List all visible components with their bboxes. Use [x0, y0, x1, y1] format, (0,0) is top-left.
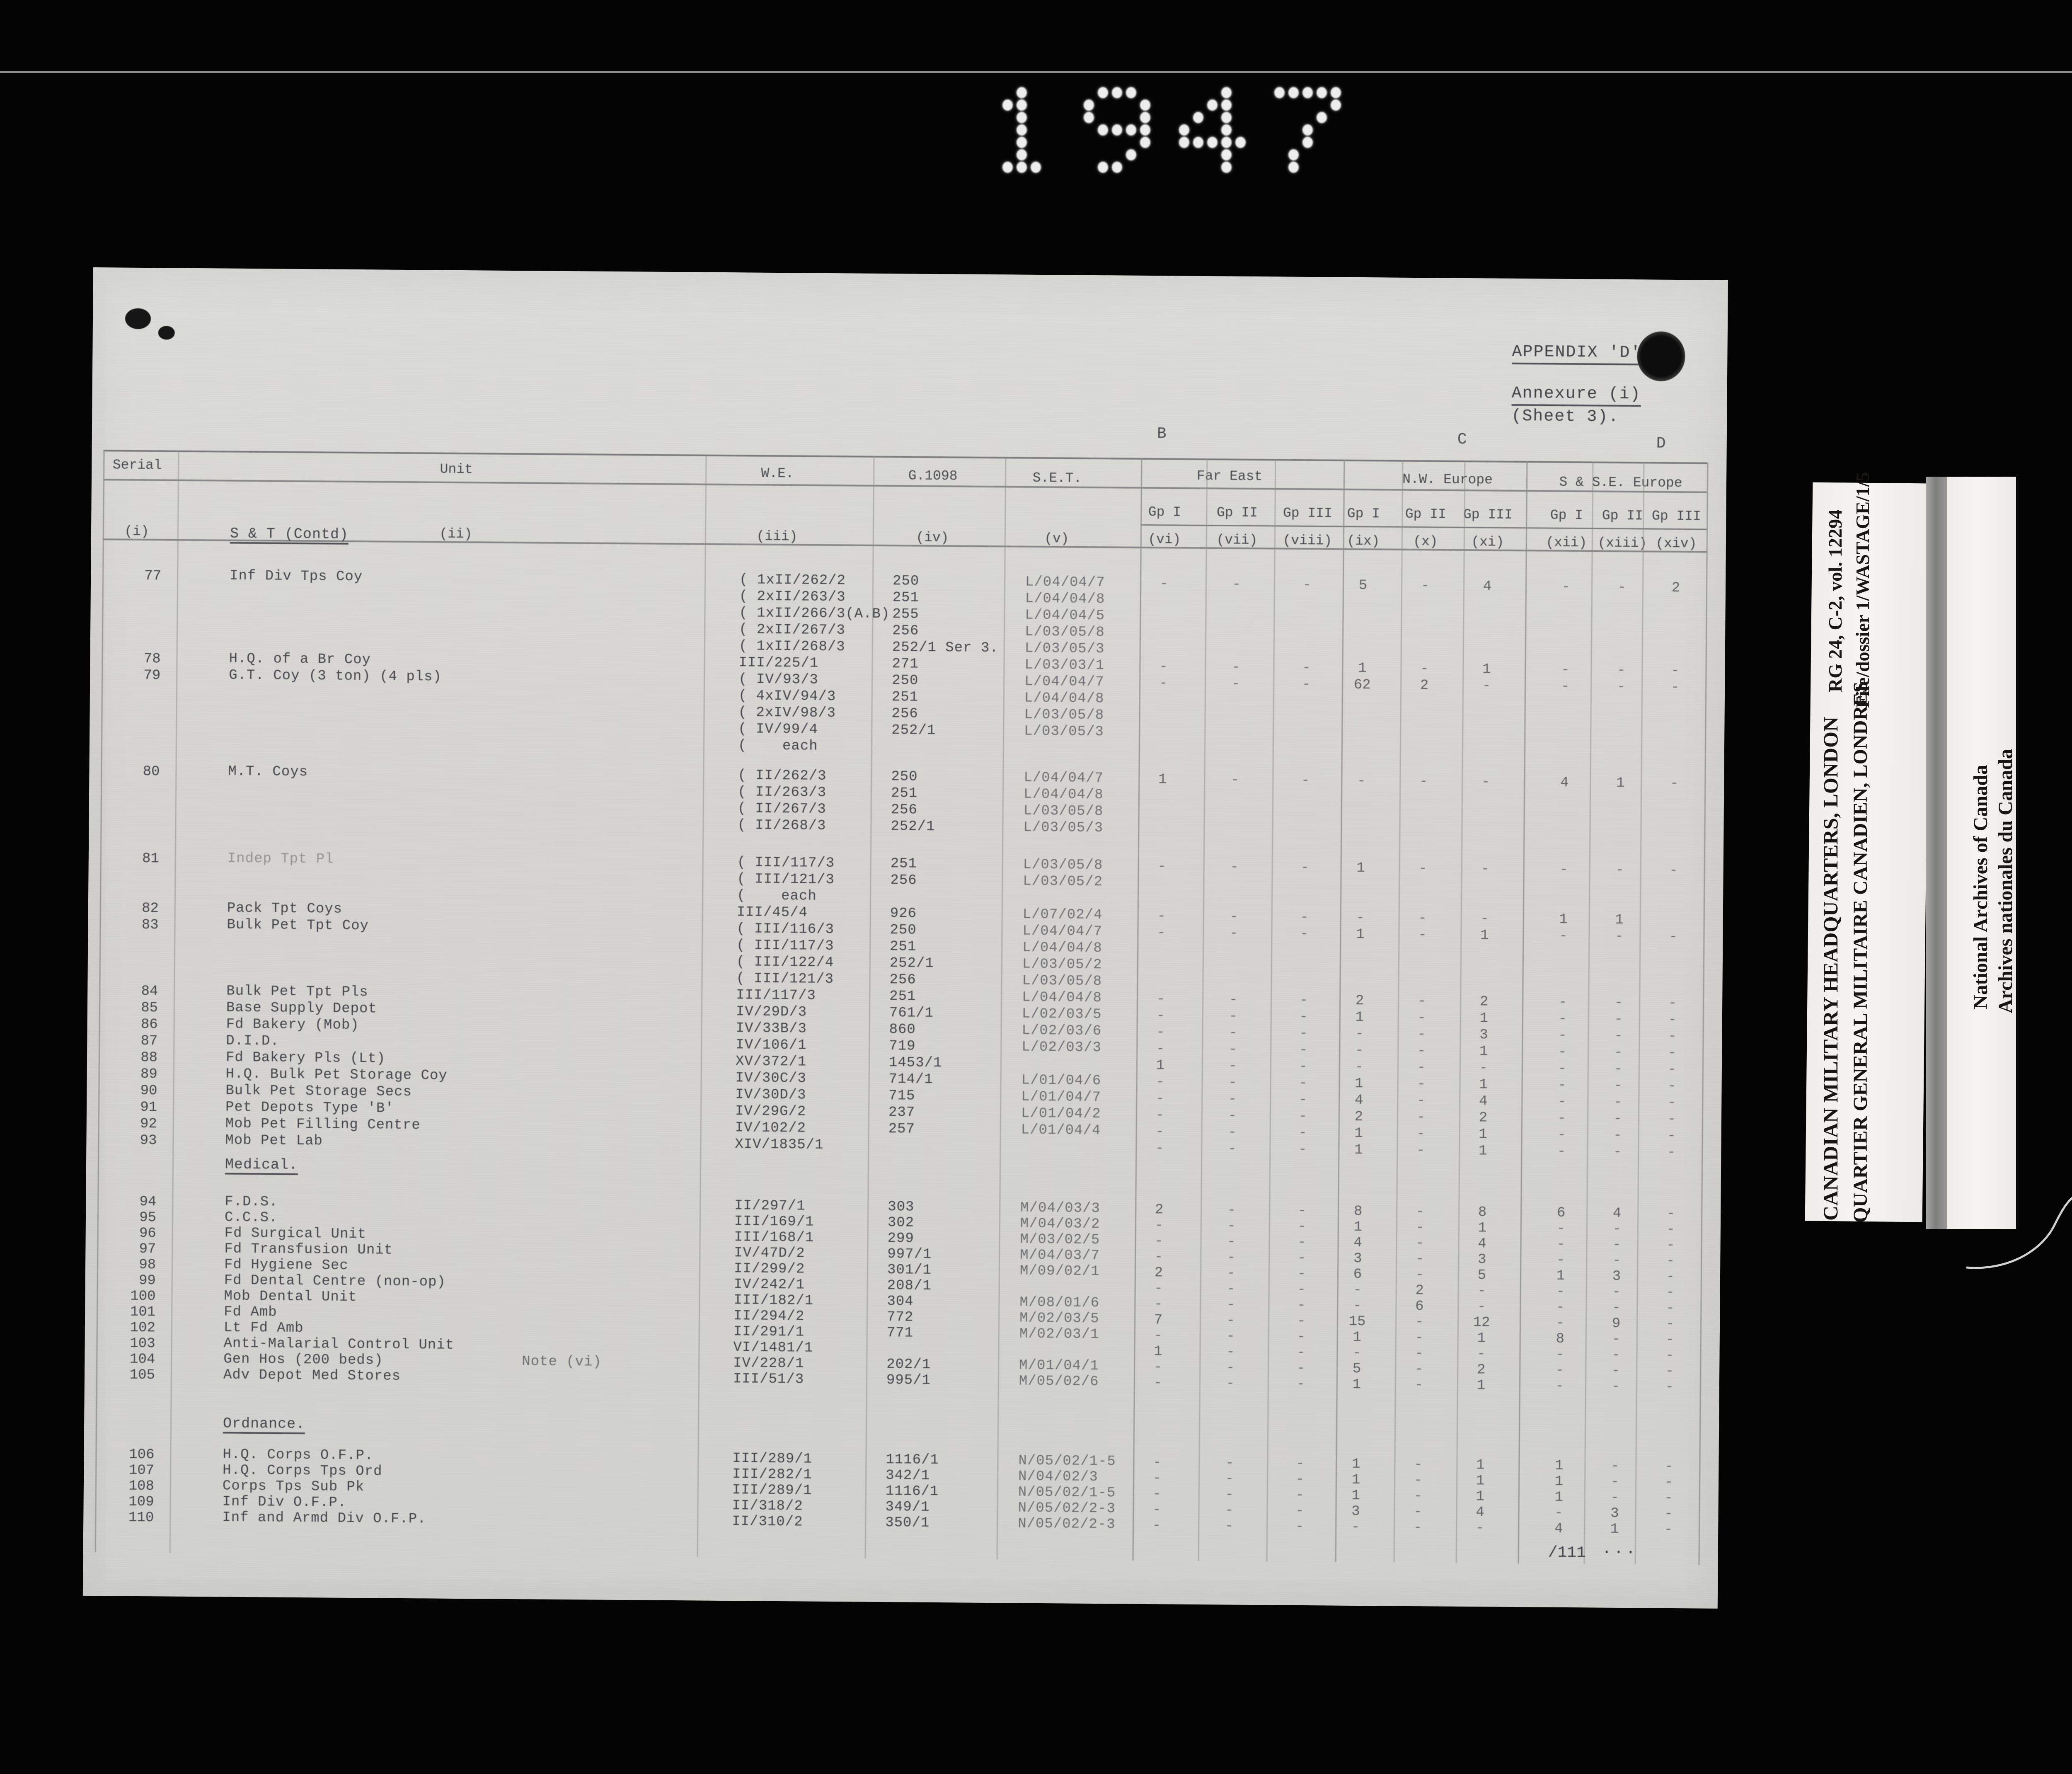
grid-cell: -: [1589, 1300, 1643, 1316]
row-set: L/03/05/8: [1024, 804, 1104, 819]
grid-cell: -: [1397, 661, 1451, 677]
grid-cell: -: [1209, 676, 1263, 692]
row-unit: Lt Fd Amb: [224, 1321, 304, 1336]
table-vertical-line: [1266, 459, 1276, 1561]
row-we: ( III/122/4: [736, 955, 834, 970]
row-g1098: 251: [889, 989, 916, 1004]
grid-cell: -: [1204, 1281, 1258, 1297]
row-set: M/03/02/5: [1020, 1233, 1100, 1248]
row-serial: 80: [106, 763, 160, 780]
row-g1098: 1116/1: [886, 1484, 939, 1499]
row-serial: 110: [100, 1510, 154, 1526]
grid-cell: -: [1205, 1218, 1259, 1234]
row-serial: 105: [101, 1367, 155, 1383]
header-we: W.E.: [761, 466, 794, 482]
grid-cell: 2: [1397, 678, 1451, 694]
row-serial: 81: [105, 851, 159, 867]
row-g1098: 299: [888, 1231, 914, 1246]
grid-cell: -: [1210, 577, 1264, 593]
grid-cell: -: [1133, 1025, 1187, 1041]
grid-cell: 2: [1456, 1110, 1510, 1126]
grid-cell: 1: [1131, 1344, 1185, 1360]
grid-cell: 1: [1532, 1489, 1586, 1505]
grid-cell: 4: [1532, 1521, 1585, 1537]
row-we: IV/30C/3: [736, 1071, 806, 1086]
row-g1098: 255: [892, 607, 919, 622]
grid-cell: -: [1589, 1347, 1643, 1363]
row-we: ( II/262/3: [738, 768, 826, 783]
grid-cell: -: [1536, 1011, 1590, 1027]
row-g1098: 995/1: [886, 1373, 931, 1388]
grid-cell: -: [1274, 1345, 1328, 1361]
grid-cell: 1: [1537, 911, 1590, 928]
row-we: IV/33B/3: [736, 1021, 806, 1036]
grid-cell: -: [1532, 1505, 1585, 1521]
grid-cell: -: [1136, 676, 1190, 692]
row-serial: 95: [102, 1209, 156, 1226]
grid-cell: -: [1394, 1076, 1448, 1093]
row-unit: M.T. Coys: [228, 765, 308, 780]
column-number: (vi): [1148, 532, 1181, 548]
year-dot: [1317, 87, 1327, 98]
grid-cell: -: [1330, 1298, 1384, 1314]
grid-cell: -: [1648, 663, 1702, 679]
film-splice-band: [1926, 477, 1947, 1229]
table-body: S & T (Contd)77Inf Div Tps Coy( 1xII/262…: [93, 267, 1728, 280]
grid-cell: -: [1641, 1522, 1695, 1538]
grid-cell: -: [1592, 928, 1646, 945]
year-dot: [1112, 87, 1122, 98]
row-unit: Inf and Armd Div O.F.P.: [222, 1511, 426, 1527]
grid-cell: 4: [1460, 579, 1514, 595]
grid-cell: -: [1394, 1093, 1448, 1109]
row-serial: 86: [104, 1016, 158, 1032]
year-dot: [1302, 124, 1313, 136]
grid-cell: -: [1647, 776, 1701, 792]
row-g1098: 256: [889, 973, 916, 987]
year-dot: [1017, 149, 1027, 160]
row-g1098: 714/1: [889, 1072, 933, 1087]
grid-cell: -: [1273, 1471, 1327, 1488]
ink-blot: [158, 326, 175, 339]
grid-cell: -: [1643, 1316, 1697, 1332]
grid-cell: -: [1395, 927, 1449, 943]
year-dot: [1302, 137, 1313, 148]
grid-cell: -: [1276, 1108, 1330, 1125]
grid-cell: -: [1535, 1144, 1588, 1160]
grid-cell: -: [1647, 863, 1701, 879]
appendix-label: APPENDIX 'D': [1512, 343, 1641, 365]
year-dot: [1098, 87, 1108, 98]
gp-label: Gp I: [1550, 508, 1583, 523]
row-serial: 109: [100, 1494, 154, 1510]
grid-cell: 4: [1332, 1093, 1386, 1109]
gp-label: Gp I: [1347, 506, 1380, 522]
row-g1098: 304: [887, 1294, 913, 1309]
row-g1098: 257: [888, 1122, 915, 1137]
year-dot: [1098, 124, 1108, 136]
grid-cell: -: [1588, 1474, 1642, 1490]
grid-cell: -: [1644, 1221, 1698, 1238]
grid-cell: -: [1273, 1503, 1326, 1519]
grid-cell: -: [1205, 1091, 1259, 1108]
grid-cell: -: [1274, 1376, 1328, 1392]
grid-cell: -: [1592, 995, 1646, 1011]
year-dot: [1207, 137, 1218, 148]
grid-cell: -: [1590, 1237, 1644, 1253]
row-g1098: 771: [887, 1326, 913, 1340]
grid-cell: -: [1645, 1095, 1699, 1111]
grid-cell: 1: [1593, 912, 1646, 928]
year-dot: [1017, 137, 1027, 148]
row-g1098: 252/1: [890, 956, 934, 971]
grid-cell: -: [1397, 774, 1450, 790]
year-dot: [1140, 137, 1150, 148]
year-dot: [1221, 149, 1232, 160]
grid-cell: 1: [1331, 1142, 1385, 1158]
column-number: (vii): [1216, 532, 1257, 548]
row-set: M/01/04/1: [1019, 1359, 1099, 1374]
archive-nac-french: Archives nationales du Canada: [1994, 749, 2017, 1013]
grid-cell: -: [1393, 1204, 1447, 1220]
grid-cell: -: [1588, 1458, 1642, 1474]
grid-cell: 1: [1329, 1457, 1383, 1473]
grid-cell: -: [1590, 1253, 1644, 1269]
archive-hq-french: QUARTIER GENERAL MILITAIRE CANADIEN, LON…: [1849, 681, 1872, 1223]
film-edge-line: [0, 71, 2072, 73]
row-set: L/01/04/4: [1021, 1123, 1101, 1138]
row-set: L/01/04/6: [1021, 1074, 1101, 1088]
grid-cell: -: [1132, 1234, 1186, 1250]
row-we: IV/106/1: [736, 1038, 806, 1052]
grid-cell: -: [1535, 1127, 1589, 1143]
grid-cell: -: [1209, 659, 1263, 676]
year-dot: [1084, 112, 1094, 123]
row-set: L/04/04/7: [1025, 575, 1105, 590]
grid-cell: -: [1645, 1128, 1699, 1144]
document-page-content: APPENDIX 'D' Annexure (i) (Sheet 3). B C…: [83, 267, 1728, 1609]
archive-rg-reference: RG 24, C-2, vol. 12294: [1824, 509, 1846, 692]
column-number: (v): [1044, 531, 1069, 546]
grid-cell: -: [1533, 1299, 1587, 1316]
grid-cell: -: [1395, 994, 1449, 1010]
grid-cell: 5: [1336, 578, 1390, 594]
grid-cell: -: [1535, 1094, 1589, 1110]
grid-cell: -: [1393, 1251, 1447, 1267]
row-set: M/05/02/6: [1019, 1374, 1099, 1389]
grid-cell: -: [1536, 928, 1590, 944]
row-set: M/08/01/6: [1019, 1296, 1099, 1311]
grid-cell: 8: [1455, 1204, 1509, 1221]
column-number: (xiv): [1656, 536, 1697, 552]
row-set: M/04/03/3: [1020, 1201, 1100, 1216]
gp-label: Gp II: [1217, 505, 1258, 521]
grid-cell: 1: [1330, 1377, 1384, 1393]
row-serial: 84: [104, 983, 158, 999]
grid-cell: -: [1276, 1141, 1329, 1158]
row-unit: Inf Div Tps Coy: [230, 569, 363, 584]
grid-cell: -: [1276, 1059, 1330, 1075]
grid-cell: -: [1393, 1220, 1447, 1236]
grid-cell: -: [1205, 1108, 1259, 1124]
grid-cell: 2: [1457, 994, 1511, 1010]
grid-cell: 1: [1453, 1473, 1507, 1489]
row-serial: 91: [103, 1099, 157, 1115]
year-dot: [1221, 162, 1232, 173]
row-set: L/03/05/2: [1022, 957, 1102, 972]
year-dot: [1017, 124, 1027, 136]
row-set: L/03/05/3: [1023, 821, 1103, 836]
grid-cell: -: [1458, 861, 1512, 877]
grid-cell: -: [1273, 1487, 1327, 1503]
grid-cell: -: [1455, 1283, 1509, 1299]
row-serial: 89: [104, 1066, 157, 1082]
row-we: ( III/121/3: [737, 872, 835, 887]
table-vertical-line: [997, 457, 1007, 1559]
grid-cell: 62: [1335, 677, 1389, 693]
grid-cell: -: [1396, 861, 1450, 877]
row-set: L/04/04/7: [1022, 924, 1102, 939]
grid-cell: -: [1131, 1297, 1185, 1313]
grid-cell: -: [1205, 1202, 1259, 1219]
grid-cell: 1: [1455, 1330, 1508, 1347]
grid-cell: -: [1275, 1203, 1329, 1219]
table-vertical-line: [1518, 461, 1528, 1563]
row-set: L/04/04/8: [1025, 592, 1105, 607]
grid-cell: -: [1133, 1124, 1187, 1140]
header-g1098: G.1098: [908, 468, 958, 484]
year-dot: [1084, 99, 1094, 111]
row-unit: H.Q. Bulk Pet Storage Coy: [226, 1067, 448, 1083]
row-g1098: 342/1: [886, 1469, 930, 1483]
row-set: N/04/02/3: [1018, 1470, 1098, 1485]
row-serial: 98: [102, 1257, 156, 1273]
table-rule-top: [104, 450, 1707, 464]
row-g1098: 250: [891, 770, 917, 784]
grid-cell: -: [1590, 1284, 1644, 1300]
row-serial: 83: [104, 917, 158, 933]
grid-cell: -: [1202, 1518, 1256, 1534]
grid-cell: -: [1206, 1042, 1260, 1058]
grid-cell: -: [1590, 1144, 1644, 1160]
table-vertical-line: [1699, 463, 1709, 1565]
grid-cell: -: [1534, 1221, 1588, 1237]
grid-cell: -: [1537, 862, 1591, 878]
row-set: L/04/04/8: [1022, 941, 1102, 956]
year-dot: [1207, 99, 1218, 111]
row-set: M/02/03/5: [1019, 1311, 1099, 1326]
grid-cell: -: [1206, 992, 1260, 1008]
grid-cell: -: [1329, 1520, 1382, 1536]
row-g1098: 997/1: [887, 1247, 932, 1262]
grid-cell: 3: [1455, 1252, 1509, 1268]
grid-cell: 1: [1456, 1143, 1510, 1159]
grid-cell: -: [1458, 911, 1512, 927]
grid-cell: -: [1589, 1379, 1643, 1395]
row-set: L/02/03/6: [1021, 1024, 1101, 1039]
grid-cell: 1: [1329, 1472, 1383, 1488]
grid-cell: -: [1395, 1010, 1449, 1026]
table-grid-lines: [93, 267, 1728, 280]
row-we: ( IV/99/4: [738, 722, 818, 737]
row-serial: 97: [102, 1241, 156, 1257]
row-g1098: 202/1: [886, 1357, 931, 1372]
row-set: L/07/02/4: [1023, 908, 1103, 923]
continuation-dots: ...: [1602, 1540, 1638, 1558]
column-letter-c: C: [1457, 431, 1467, 448]
row-g1098: 1116/1: [886, 1453, 939, 1467]
grid-cell: -: [1203, 1344, 1257, 1360]
row-unit: Pet Depots Type 'B': [225, 1100, 394, 1116]
grid-cell: -: [1276, 1092, 1330, 1108]
grid-cell: -: [1535, 1028, 1589, 1044]
grid-cell: -: [1276, 1075, 1330, 1091]
grid-cell: 1: [1335, 661, 1389, 677]
grid-cell: -: [1133, 1108, 1187, 1124]
row-g1098: 860: [889, 1023, 915, 1037]
row-serial: 92: [103, 1116, 157, 1132]
row-we: IV/228/1: [733, 1356, 804, 1371]
grid-cell: -: [1203, 1487, 1256, 1503]
row-set: L/02/03/3: [1021, 1040, 1101, 1055]
row-set: L/04/04/5: [1025, 608, 1105, 623]
grid-cell: 8: [1533, 1331, 1587, 1347]
row-g1098: 926: [890, 906, 917, 921]
grid-cell: -: [1204, 1234, 1258, 1250]
grid-cell: -: [1133, 1091, 1187, 1107]
row-unit: H.Q. of a Br Coy: [229, 652, 371, 667]
row-serial: 106: [100, 1447, 154, 1463]
grid-cell: -: [1204, 1313, 1258, 1329]
year-dot: [1288, 87, 1299, 98]
row-g1098: 719: [889, 1039, 915, 1054]
header-serial: Serial: [113, 457, 162, 473]
row-g1098: 237: [888, 1105, 915, 1120]
row-we: XV/372/1: [736, 1054, 806, 1069]
year-dot: [1302, 87, 1313, 98]
year-dot: [1002, 162, 1013, 173]
column-number-row: (i)(ii)(iii)(iv)(v)(vi)(vii)(viii)(ix)(x…: [93, 267, 1728, 280]
grid-cell: -: [1206, 1058, 1260, 1074]
grid-cell: -: [1394, 1110, 1448, 1126]
row-unit: D.I.D.: [226, 1034, 279, 1049]
grid-cell: -: [1392, 1346, 1446, 1362]
grid-cell: 6: [1392, 1299, 1446, 1315]
row-we: ( III/117/3: [737, 855, 835, 870]
row-set: L/03/05/8: [1025, 625, 1105, 640]
grid-cell: -: [1535, 1077, 1589, 1093]
grid-cell: -: [1207, 926, 1261, 942]
grid-cell: -: [1538, 662, 1592, 678]
grid-cell: -: [1642, 1474, 1696, 1490]
grid-cell: -: [1393, 1236, 1447, 1252]
year-dot: [1235, 137, 1246, 148]
grid-cell: -: [1644, 1253, 1697, 1269]
grid-cell: -: [1275, 1266, 1329, 1282]
grid-cell: -: [1205, 1075, 1259, 1091]
row-unit: G.T. Coy (3 ton) (4 pls): [229, 669, 442, 684]
column-number: (iii): [756, 529, 797, 545]
grid-cell: 1: [1332, 1126, 1386, 1142]
hole-punch: [1637, 331, 1685, 381]
grid-cell: 4: [1453, 1505, 1507, 1521]
ink-blot: [125, 308, 151, 329]
grid-cell: -: [1396, 911, 1450, 927]
grid-cell: -: [1279, 677, 1333, 693]
grid-cell: -: [1539, 579, 1593, 595]
row-we: III/182/1: [733, 1293, 813, 1308]
row-we: ( 2xIV/98/3: [738, 705, 836, 720]
grid-cell: 5: [1455, 1267, 1509, 1284]
grid-cell: -: [1274, 1360, 1328, 1377]
row-g1098: 715: [888, 1089, 915, 1103]
grid-cell: 2: [1132, 1202, 1186, 1218]
grid-cell: -: [1203, 1376, 1257, 1392]
archive-label-strip: RG 24, C-2, vol. 12294 File/dossier 1/WA…: [1807, 477, 2016, 1229]
grid-cell: -: [1391, 1520, 1445, 1536]
column-number: (ix): [1347, 533, 1380, 549]
row-we: ( 2xII/267/3: [739, 623, 845, 637]
table-vertical-line: [95, 450, 105, 1552]
row-g1098: 303: [888, 1200, 914, 1214]
row-serial: 90: [103, 1083, 157, 1099]
grid-cell: 1: [1532, 1458, 1586, 1474]
year-dot: [1031, 162, 1041, 173]
header-group-sse-europe: S & S.E. Europe: [1559, 475, 1682, 491]
grid-cell: -: [1275, 1234, 1329, 1251]
row-unit: Mob Dental Unit: [224, 1289, 357, 1305]
grid-cell: -: [1134, 925, 1188, 941]
year-dot: [1274, 87, 1285, 98]
grid-cell: -: [1454, 1346, 1508, 1362]
year-dot: [1179, 137, 1189, 148]
row-serial: 79: [107, 667, 160, 683]
row-serial: 100: [102, 1288, 155, 1304]
row-serial: 78: [107, 651, 160, 667]
grid-cell: -: [1132, 1218, 1186, 1234]
grid-cell: -: [1392, 1330, 1446, 1346]
grid-cell: -: [1204, 1297, 1258, 1313]
grid-cell: -: [1332, 1026, 1386, 1042]
grid-cell: -: [1643, 1332, 1697, 1348]
row-we: II/294/2: [733, 1309, 804, 1323]
section-heading: S & T (Contd): [230, 527, 349, 545]
grid-cell: 1: [1135, 772, 1189, 788]
grid-cell: -: [1203, 1360, 1257, 1376]
grid-cell: -: [1644, 1284, 1697, 1301]
row-g1098: 251: [890, 940, 916, 954]
archive-hq-english: CANADIAN MILITARY HEADQUARTERS, LONDON: [1818, 717, 1842, 1221]
column-number: (x): [1413, 534, 1438, 549]
column-number: (ii): [439, 526, 472, 542]
grid-cell: 1: [1133, 1058, 1187, 1074]
grid-cell: -: [1276, 1025, 1330, 1042]
grid-cell: -: [1535, 1061, 1589, 1077]
row-g1098: 250: [890, 923, 916, 938]
row-we: VI/1481/1: [733, 1340, 813, 1355]
grid-cell: 2: [1132, 1265, 1186, 1281]
row-we: III/282/1: [732, 1467, 812, 1482]
row-set: N/05/02/2-3: [1018, 1517, 1116, 1532]
section-heading: Medical.: [225, 1158, 298, 1175]
year-dot: [1221, 112, 1232, 123]
grid-cell: -: [1203, 1455, 1256, 1471]
row-g1098: 301/1: [887, 1263, 932, 1277]
row-we: ( each: [737, 889, 817, 904]
row-unit: Fd Dental Centre (non-op): [224, 1274, 446, 1289]
grid-cell: 1: [1456, 1127, 1510, 1143]
grid-cell: -: [1275, 1219, 1329, 1235]
